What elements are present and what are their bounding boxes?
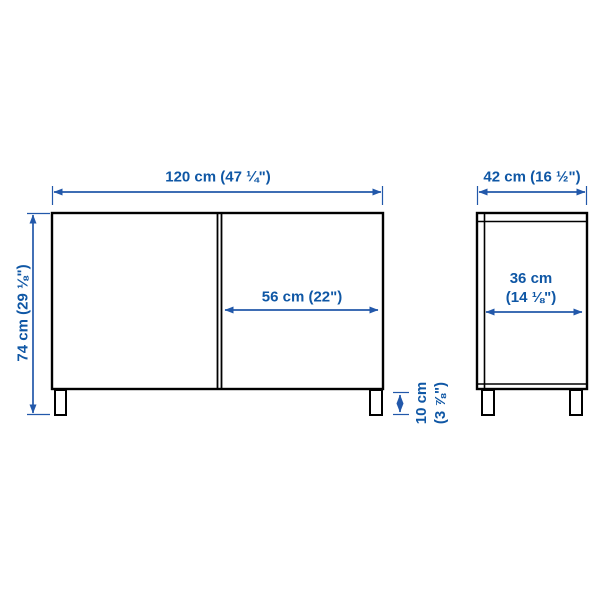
front-view bbox=[52, 213, 383, 415]
label-door-width: 56 cm (22") bbox=[262, 288, 343, 307]
front-view-left-leg bbox=[55, 390, 66, 415]
label-leg-height-line2: (3 ⅞") bbox=[431, 382, 450, 425]
label-overall-height: 74 cm (29 ⅛") bbox=[14, 264, 33, 361]
label-inner-depth: 36 cm (14 ⅛") bbox=[506, 269, 556, 307]
label-leg-height-line1: 10 cm bbox=[412, 382, 431, 425]
label-inner-depth-line1: 36 cm bbox=[506, 269, 556, 288]
side-view-right-leg bbox=[570, 390, 582, 415]
side-view-left-leg bbox=[482, 390, 494, 415]
label-overall-depth: 42 cm (16 ½") bbox=[483, 168, 580, 187]
label-inner-depth-line2: (14 ⅛") bbox=[506, 288, 556, 307]
dimension-diagram: 120 cm (47 ¼") 42 cm (16 ½") 74 cm (29 ⅛… bbox=[0, 0, 600, 600]
front-view-right-leg bbox=[370, 390, 382, 415]
label-overall-width: 120 cm (47 ¼") bbox=[165, 168, 271, 187]
label-leg-height: 10 cm (3 ⅞") bbox=[412, 382, 450, 425]
side-view bbox=[477, 213, 587, 415]
